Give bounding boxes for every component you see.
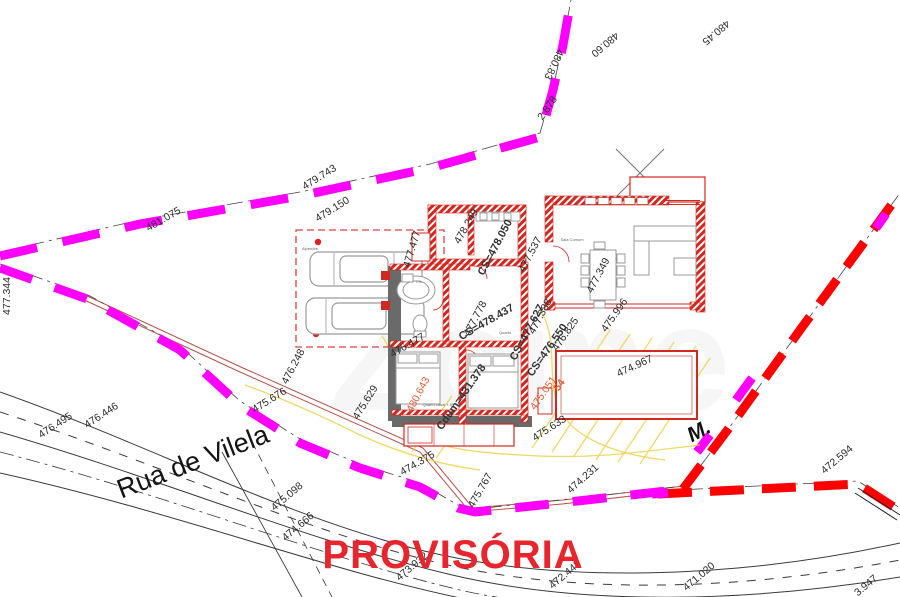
room-label: Sala Comum xyxy=(560,237,584,242)
fence-double-line xyxy=(858,488,900,515)
elevation-label: 3.947 xyxy=(852,573,880,597)
kitchen-counter xyxy=(476,212,520,221)
elevation-label: 476.248 xyxy=(279,347,307,386)
boundary-magenta-accent xyxy=(876,214,886,228)
elevation-label: 477.344 xyxy=(1,277,13,315)
room-label: Quarto xyxy=(499,330,512,335)
pool-outline xyxy=(556,351,697,419)
car-bottom xyxy=(306,298,424,334)
elevation-label: 479.150 xyxy=(313,194,352,224)
boundary-red-dashes xyxy=(658,484,900,511)
pillow xyxy=(419,354,438,363)
site-plan-drawing: Zome xyxy=(0,0,900,597)
threshold-label: CS=478.050 xyxy=(476,218,515,278)
carport-column-dot xyxy=(315,239,321,245)
elevation-label: 480.83 xyxy=(541,47,566,81)
lower-terrace xyxy=(404,424,514,446)
room-label: Quarto casal + IS xyxy=(422,402,453,407)
sofa xyxy=(634,226,696,275)
elevation-label: 474.375 xyxy=(398,449,437,478)
site-plan-canvas: Zome xyxy=(0,0,900,597)
street-name-label: Rua de Vilela xyxy=(113,419,274,505)
fixture-red xyxy=(381,301,390,310)
fixture-red xyxy=(381,271,390,280)
boundary-magenta-accent xyxy=(652,493,668,494)
elevation-label: 471.020 xyxy=(681,560,718,594)
elevation-label: 472.594 xyxy=(819,443,856,477)
room-label: Alpendre xyxy=(302,246,319,251)
elevation-label: 481.075 xyxy=(144,205,183,234)
cabinet-row xyxy=(585,198,648,205)
provisoria-stamp: PROVISÓRIA xyxy=(322,531,583,577)
elevation-label: 476.495 xyxy=(36,410,75,441)
room-label: I.S. xyxy=(416,279,422,284)
elevation-label: 480.45 xyxy=(700,17,732,47)
ottoman xyxy=(674,258,696,275)
elevation-label: 475.767 xyxy=(466,471,495,510)
elevation-label: 474.231 xyxy=(565,462,601,496)
elevation-label: 476.446 xyxy=(82,400,121,431)
elevation-label: 480.60 xyxy=(589,29,621,59)
elevation-label: 2.878 xyxy=(535,94,560,123)
sink xyxy=(402,274,413,282)
